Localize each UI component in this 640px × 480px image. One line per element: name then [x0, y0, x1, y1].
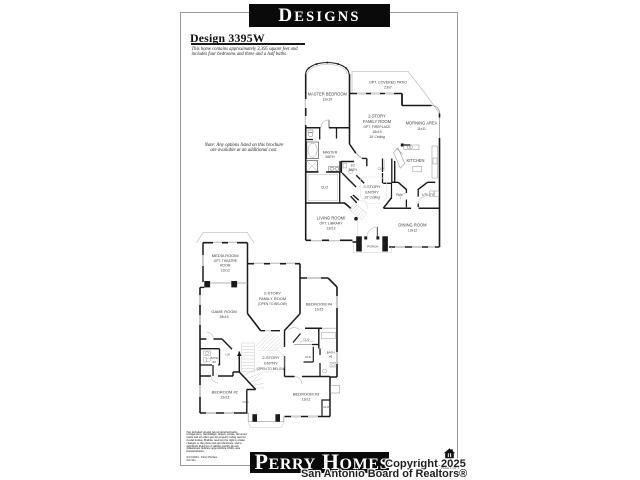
svg-text:13x11: 13x11	[302, 398, 311, 402]
svg-text:13x12: 13x12	[221, 268, 230, 272]
svg-text:(OPEN TO BELOW): (OPEN TO BELOW)	[257, 367, 286, 371]
svg-text:GAME ROOM: GAME ROOM	[211, 309, 236, 314]
svg-text:#3: #3	[329, 355, 333, 359]
svg-text:2-STORY: 2-STORY	[368, 114, 386, 119]
svg-text:BATH: BATH	[325, 155, 335, 159]
svg-text:MORNING AREA: MORNING AREA	[406, 121, 438, 126]
svg-text:BEDROOM #4: BEDROOM #4	[306, 302, 333, 307]
svg-text:CLO: CLO	[323, 405, 330, 409]
svg-text:19' Ceiling: 19' Ceiling	[369, 135, 385, 139]
svg-text:LIN: LIN	[225, 353, 229, 357]
svg-text:ENTRY: ENTRY	[365, 189, 379, 194]
svg-text:PORCH: PORCH	[367, 245, 378, 249]
svg-text:18x15: 18x15	[220, 315, 229, 319]
svg-text:BEDROOM #2: BEDROOM #2	[212, 390, 239, 395]
svg-text:11x15: 11x15	[315, 308, 324, 312]
svg-text:CLO: CLO	[321, 186, 328, 190]
svg-text:MASTER BEDROOM: MASTER BEDROOM	[308, 91, 348, 96]
svg-text:MEDIA ROOM/: MEDIA ROOM/	[212, 253, 240, 258]
svg-text:MASTER: MASTER	[323, 151, 338, 155]
svg-text:CLO: CLO	[303, 338, 310, 342]
svg-text:16x19: 16x19	[372, 130, 381, 134]
svg-text:BEDROOM #3: BEDROOM #3	[293, 392, 320, 397]
svg-text:BATH: BATH	[349, 168, 358, 172]
svg-text:FAMILY ROOM: FAMILY ROOM	[259, 296, 286, 301]
svg-text:2-STORY: 2-STORY	[363, 184, 381, 189]
svg-text:CLO: CLO	[243, 400, 250, 404]
svg-text:OPT. COVERED PATIO: OPT. COVERED PATIO	[369, 81, 407, 85]
svg-text:13x12: 13x12	[408, 229, 417, 233]
svg-text:13x19: 13x19	[322, 98, 332, 102]
svg-text:FAMILY ROOM: FAMILY ROOM	[363, 119, 392, 124]
svg-text:OPT. FIREPLACE: OPT. FIREPLACE	[363, 125, 391, 129]
svg-text:19' Ceiling: 19' Ceiling	[364, 196, 380, 200]
svg-text:(OPEN TO BELOW): (OPEN TO BELOW)	[258, 302, 287, 306]
svg-text:PAN: PAN	[396, 193, 403, 197]
svg-text:2-STORY: 2-STORY	[264, 291, 282, 296]
svg-text:CLO: CLO	[378, 166, 385, 170]
svg-text:KITCHEN: KITCHEN	[407, 158, 425, 163]
svg-text:CLO: CLO	[305, 355, 312, 359]
svg-text:23x7: 23x7	[384, 85, 392, 89]
svg-text:11x11: 11x11	[417, 127, 426, 131]
svg-text:2-STORY: 2-STORY	[262, 355, 280, 360]
svg-text:#2: #2	[213, 360, 217, 364]
svg-text:13x12: 13x12	[220, 396, 229, 400]
svg-text:LIVING ROOM/: LIVING ROOM/	[317, 216, 346, 221]
svg-text:DINING ROOM: DINING ROOM	[398, 223, 427, 228]
svg-text:OPT. THEATRE: OPT. THEATRE	[214, 259, 238, 263]
svg-text:ENTRY: ENTRY	[264, 360, 278, 365]
svg-text:ROOM: ROOM	[220, 263, 231, 267]
